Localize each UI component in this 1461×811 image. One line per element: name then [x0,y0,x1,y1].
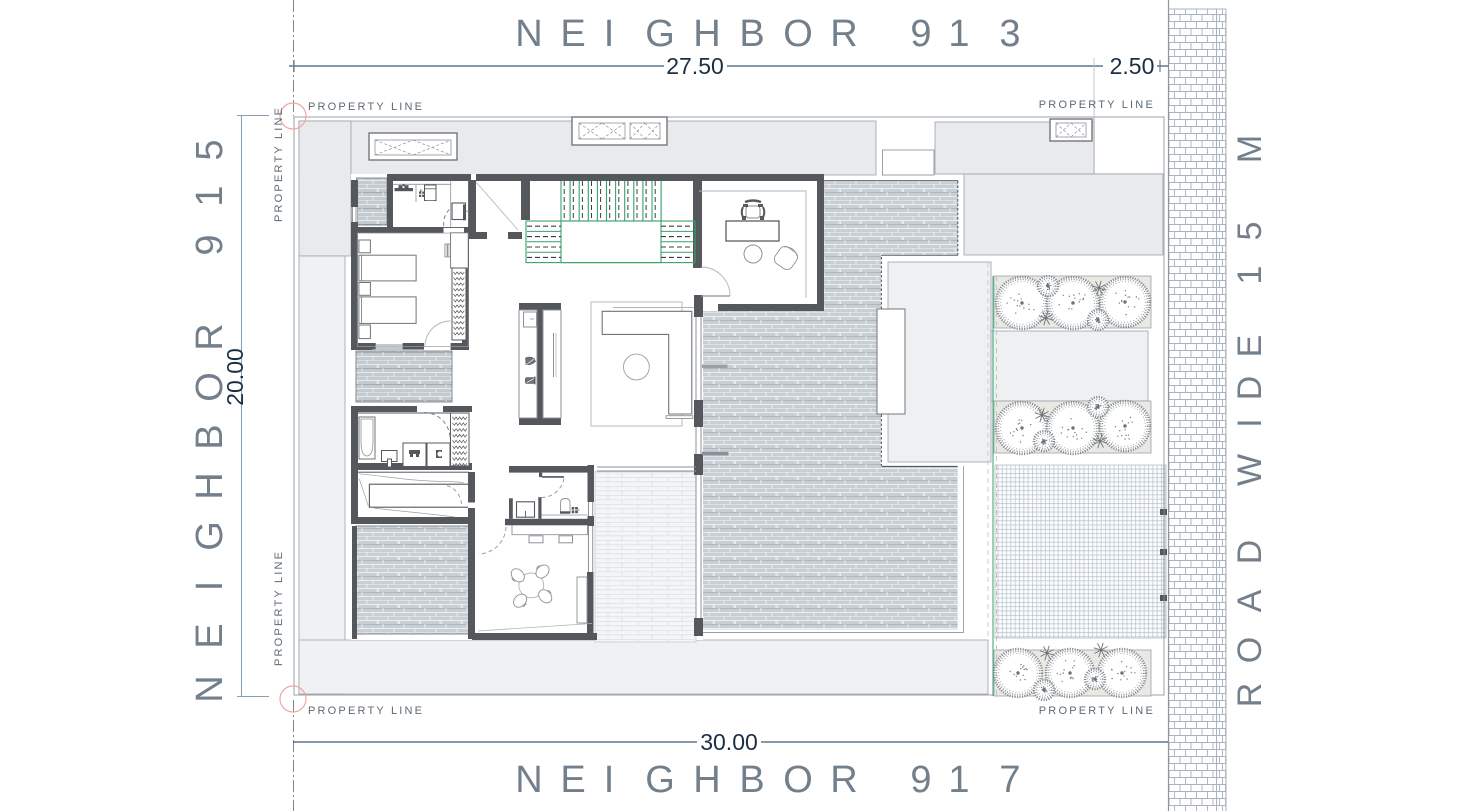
svg-text:B: B [739,13,764,55]
svg-text:PROPERTY LINE: PROPERTY LINE [1039,705,1155,717]
svg-text:PROPERTY LINE: PROPERTY LINE [1039,99,1155,111]
svg-text:9: 9 [189,234,231,255]
svg-text:O: O [783,13,813,55]
svg-text:G: G [189,521,231,551]
svg-text:5: 5 [189,139,231,160]
svg-text:27.50: 27.50 [666,53,724,79]
svg-text:30.00: 30.00 [700,729,758,755]
svg-text:9: 9 [910,759,931,801]
svg-text:7: 7 [999,759,1020,801]
svg-text:R: R [830,13,857,55]
svg-text:E: E [560,759,585,801]
svg-text:1: 1 [948,13,969,55]
svg-text:D: D [1231,376,1269,401]
svg-text:O: O [189,372,231,402]
svg-text:O: O [1231,637,1269,663]
svg-text:N: N [515,759,542,801]
svg-text:G: G [645,759,675,801]
svg-text:H: H [693,13,720,55]
svg-text:N: N [189,675,231,702]
svg-text:9: 9 [910,13,931,55]
svg-text:B: B [739,759,764,801]
svg-text:E: E [560,13,585,55]
svg-text:G: G [645,13,675,55]
svg-text:A: A [1231,589,1269,612]
svg-text:3: 3 [999,13,1020,55]
svg-text:N: N [515,13,542,55]
svg-text:B: B [189,424,231,449]
svg-text:I: I [1231,418,1269,427]
svg-text:R: R [1231,683,1269,708]
svg-text:1: 1 [948,759,969,801]
svg-text:O: O [783,759,813,801]
svg-text:W: W [1231,454,1269,486]
svg-text:PROPERTY LINE: PROPERTY LINE [273,106,285,222]
svg-text:H: H [189,472,231,499]
svg-text:1: 1 [1231,266,1269,285]
svg-text:R: R [830,759,857,801]
svg-text:5: 5 [1231,222,1269,241]
svg-text:PROPERTY LINE: PROPERTY LINE [308,705,424,717]
svg-text:I: I [604,759,615,801]
svg-text:E: E [1231,335,1269,358]
svg-text:1: 1 [189,185,231,206]
svg-text:2.50: 2.50 [1110,53,1155,79]
svg-text:D: D [1231,540,1269,565]
svg-text:E: E [189,623,231,648]
svg-text:M: M [1231,135,1269,163]
svg-text:PROPERTY LINE: PROPERTY LINE [273,550,285,666]
svg-text:H: H [693,759,720,801]
svg-text:I: I [189,581,231,592]
svg-text:I: I [604,13,615,55]
svg-text:R: R [189,323,231,350]
svg-text:PROPERTY LINE: PROPERTY LINE [308,101,424,113]
